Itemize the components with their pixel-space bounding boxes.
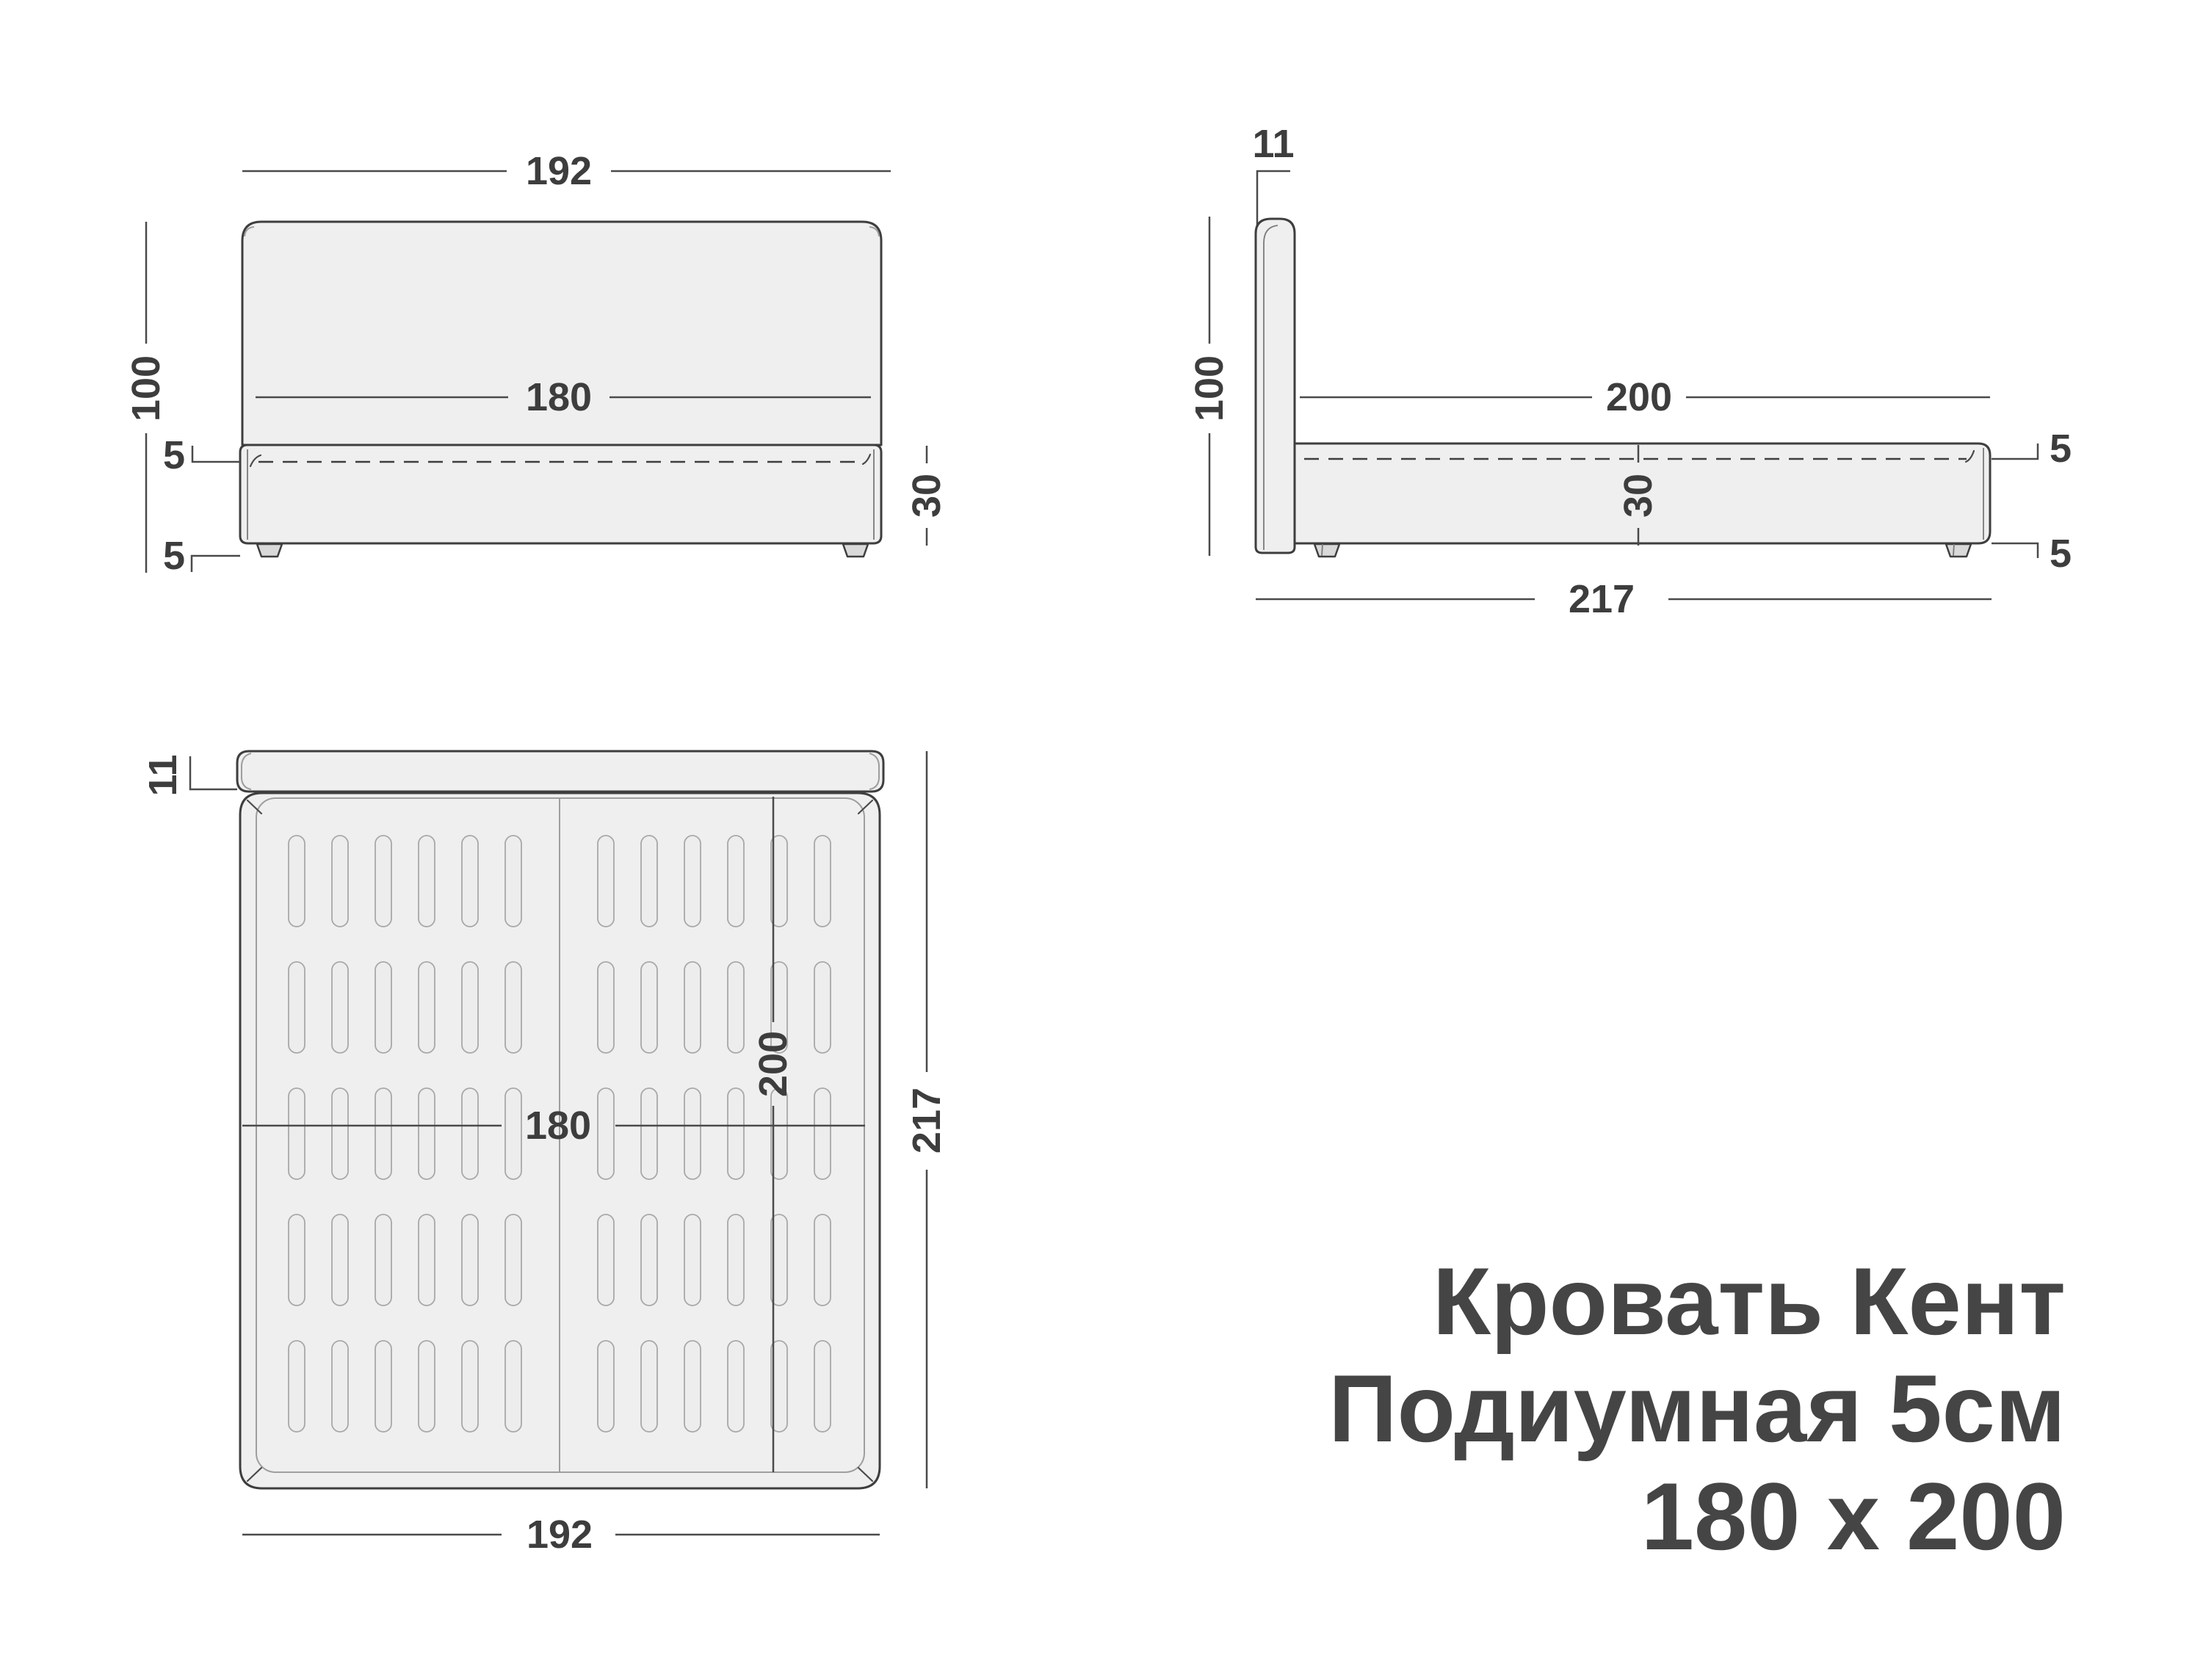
mattress-slat [728,1214,744,1306]
mattress-slat [814,962,831,1053]
mattress-slat [332,1341,348,1432]
mattress-slat [684,1214,701,1306]
top-length-label: 200 [751,1031,795,1097]
top-overall-width-label: 192 [527,1513,593,1557]
side-foot-right [1946,544,1971,557]
mattress-slat [505,1088,521,1179]
side-headboard-thickness-label: 11 [1252,122,1294,166]
mattress-slat [641,1088,657,1179]
side-foot-left-seam [1322,544,1323,556]
mattress-slat [598,836,614,927]
mattress-slat [641,1214,657,1306]
front-podium-label: 5 [163,433,185,477]
mattress-slat [728,1341,744,1432]
front-base-height-label: 30 [905,474,949,518]
mattress-slat [462,836,478,927]
mattress-slat [684,1088,701,1179]
mattress-slat [684,836,701,927]
mattress-slat [505,836,521,927]
title-line-2: Подиумная 5см [1328,1355,2066,1462]
mattress-slat [728,1088,744,1179]
front-view: 192 180 100 5 5 30 [124,149,949,578]
mattress-slat [289,962,305,1053]
mattress-slat [462,1341,478,1432]
mattress-slat [332,962,348,1053]
top-mattress-width-label: 180 [525,1104,591,1148]
mattress-slat [289,836,305,927]
front-width-label: 192 [526,149,592,193]
mattress-slat [332,1088,348,1179]
side-view: 11 100 200 30 5 5 217 [1187,122,2072,621]
mattress-slat [598,1088,614,1179]
bed-dimension-diagram: 192 180 100 5 5 30 11 [0,0,2203,1680]
mattress-slat [641,836,657,927]
mattress-slat [598,962,614,1053]
side-podium-bracket [1992,443,2038,459]
mattress-slat [419,1088,435,1179]
mattress-slat [419,962,435,1053]
mattress-slat [332,836,348,927]
top-headboard-strip [237,751,883,792]
side-foot-left [1314,544,1339,557]
mattress-slat [814,836,831,927]
mattress-slat [505,1341,521,1432]
mattress-slat [289,1214,305,1306]
front-foot-left [257,544,282,557]
mattress-slat [375,836,391,927]
mattress-slat [641,962,657,1053]
mattress-slat [814,1341,831,1432]
front-leg-label: 5 [163,534,185,578]
top-overall-length-label: 217 [905,1087,949,1154]
front-base [240,445,881,543]
mattress-slat [684,1341,701,1432]
title-line-1: Кровать Кент [1433,1248,2066,1355]
side-leg-bracket [1992,543,2038,558]
side-height-label: 100 [1187,355,1231,421]
mattress-slat [505,1214,521,1306]
mattress-slat [289,1341,305,1432]
side-foot-right-seam [1953,544,1954,556]
mattress-slat [598,1214,614,1306]
front-foot-right [843,544,868,557]
mattress-slat [684,962,701,1053]
mattress-slat [419,1341,435,1432]
mattress-slat [375,1341,391,1432]
mattress-slat [462,1214,478,1306]
mattress-slat [332,1214,348,1306]
front-mattress-width-label: 180 [526,375,592,419]
front-leg-bracket [192,556,240,572]
product-title: Кровать Кент Подиумная 5см 180 х 200 [1328,1248,2066,1570]
title-line-3: 180 х 200 [1641,1463,2066,1570]
front-height-label: 100 [124,355,168,421]
mattress-slat [462,1088,478,1179]
top-view: 11 180 200 217 192 [141,751,949,1557]
mattress-slat [419,1214,435,1306]
mattress-slat [505,962,521,1053]
mattress-slat [598,1341,614,1432]
mattress-slat [814,1214,831,1306]
mattress-slat [375,1214,391,1306]
side-base-height-label: 30 [1616,474,1660,518]
mattress-slat [375,962,391,1053]
top-headboard-thickness-bracket [190,756,237,789]
mattress-slat [728,836,744,927]
mattress-slat [375,1088,391,1179]
side-podium-label: 5 [2050,427,2072,471]
side-length-label: 200 [1606,375,1672,419]
mattress-slat [462,962,478,1053]
mattress-slat [419,836,435,927]
mattress-slat [289,1088,305,1179]
side-leg-label: 5 [2050,532,2072,576]
top-headboard-thickness-label: 11 [141,754,185,796]
side-overall-length-label: 217 [1569,577,1635,621]
side-headboard [1256,219,1295,553]
mattress-slat [641,1341,657,1432]
mattress-slat [814,1088,831,1179]
mattress-slat [728,962,744,1053]
front-podium-bracket [192,446,240,462]
